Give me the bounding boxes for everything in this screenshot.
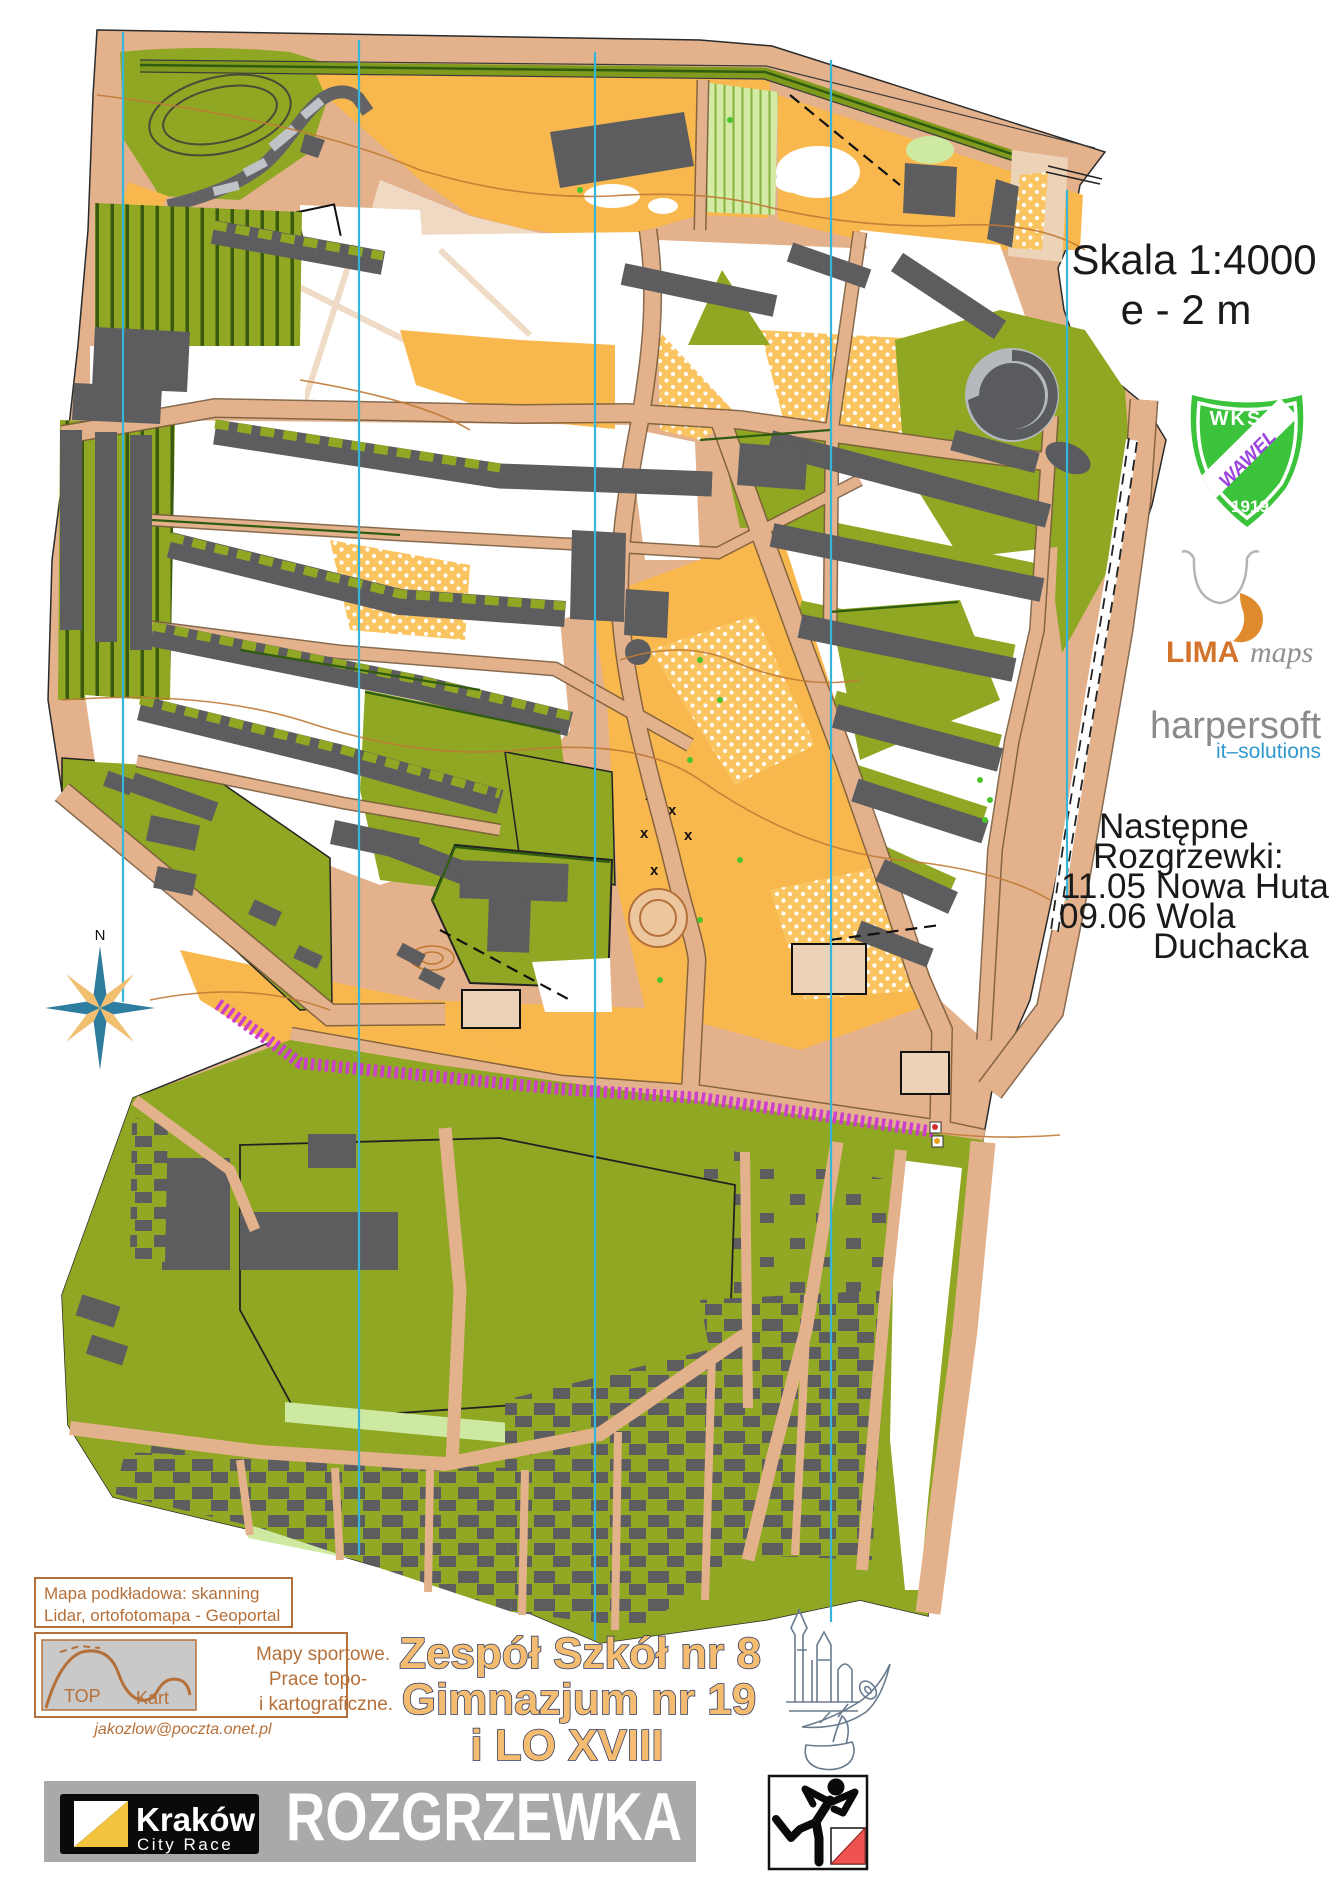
svg-text:N: N bbox=[95, 927, 106, 944]
svg-text:i LO XVIII: i LO XVIII bbox=[470, 1721, 663, 1770]
svg-text:Gimnazjum nr 19: Gimnazjum nr 19 bbox=[402, 1675, 757, 1724]
svg-text:Skala 1:4000: Skala 1:4000 bbox=[1071, 236, 1316, 283]
svg-text:Prace topo-: Prace topo- bbox=[269, 1669, 367, 1690]
svg-text:Zespół Szkół nr 8: Zespół Szkół nr 8 bbox=[399, 1629, 761, 1678]
svg-text:Kraków: Kraków bbox=[136, 1801, 256, 1838]
svg-text:1919: 1919 bbox=[1231, 497, 1269, 516]
svg-text:City Race: City Race bbox=[137, 1835, 233, 1854]
svg-text:jakozlow@poczta.onet.pl: jakozlow@poczta.onet.pl bbox=[92, 1721, 272, 1738]
svg-text:x: x bbox=[640, 825, 649, 842]
svg-text:Kart: Kart bbox=[136, 1688, 169, 1708]
svg-text:Duchacka: Duchacka bbox=[1153, 927, 1309, 966]
svg-text:ROZGRZEWKA: ROZGRZEWKA bbox=[286, 1779, 682, 1855]
svg-text:Lidar, ortofotomapa - Geoporta: Lidar, ortofotomapa - Geoportal bbox=[44, 1606, 280, 1625]
svg-text:TOP: TOP bbox=[64, 1686, 101, 1706]
svg-text:Mapa podkładowa: skanning: Mapa podkładowa: skanning bbox=[44, 1584, 259, 1603]
svg-text:i kartograficzne.: i kartograficzne. bbox=[259, 1694, 393, 1715]
svg-text:Mapy sportowe.: Mapy sportowe. bbox=[256, 1644, 390, 1665]
svg-text:x: x bbox=[650, 862, 659, 879]
svg-text:WKS: WKS bbox=[1210, 408, 1263, 430]
svg-text:it–solutions: it–solutions bbox=[1216, 740, 1321, 763]
svg-text:LIMA: LIMA bbox=[1166, 636, 1239, 669]
svg-text:x: x bbox=[684, 827, 693, 844]
svg-text:maps: maps bbox=[1250, 636, 1313, 669]
svg-text:e - 2 m: e - 2 m bbox=[1121, 286, 1252, 333]
